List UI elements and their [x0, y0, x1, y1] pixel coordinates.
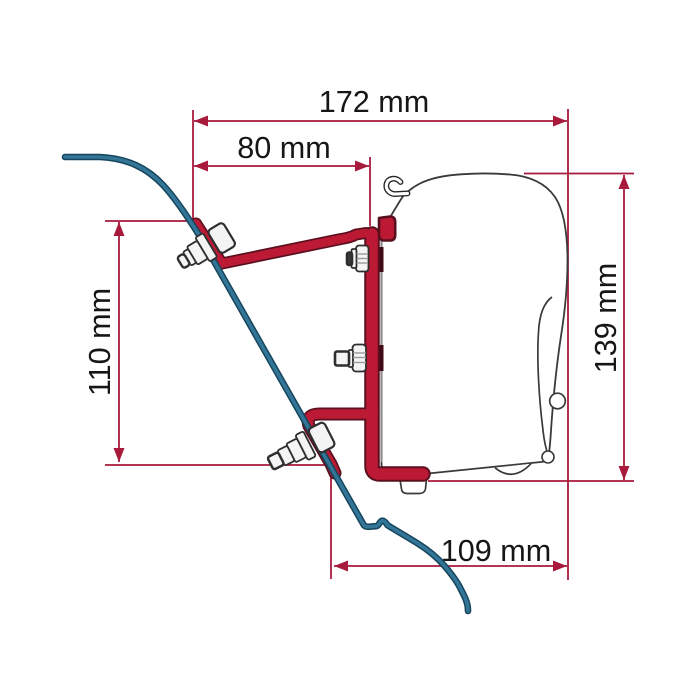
svg-text:139 mm: 139 mm	[589, 263, 623, 374]
svg-text:172 mm: 172 mm	[319, 85, 430, 119]
svg-text:80 mm: 80 mm	[237, 131, 331, 165]
svg-text:110 mm: 110 mm	[83, 288, 117, 396]
svg-text:109 mm: 109 mm	[441, 534, 552, 568]
